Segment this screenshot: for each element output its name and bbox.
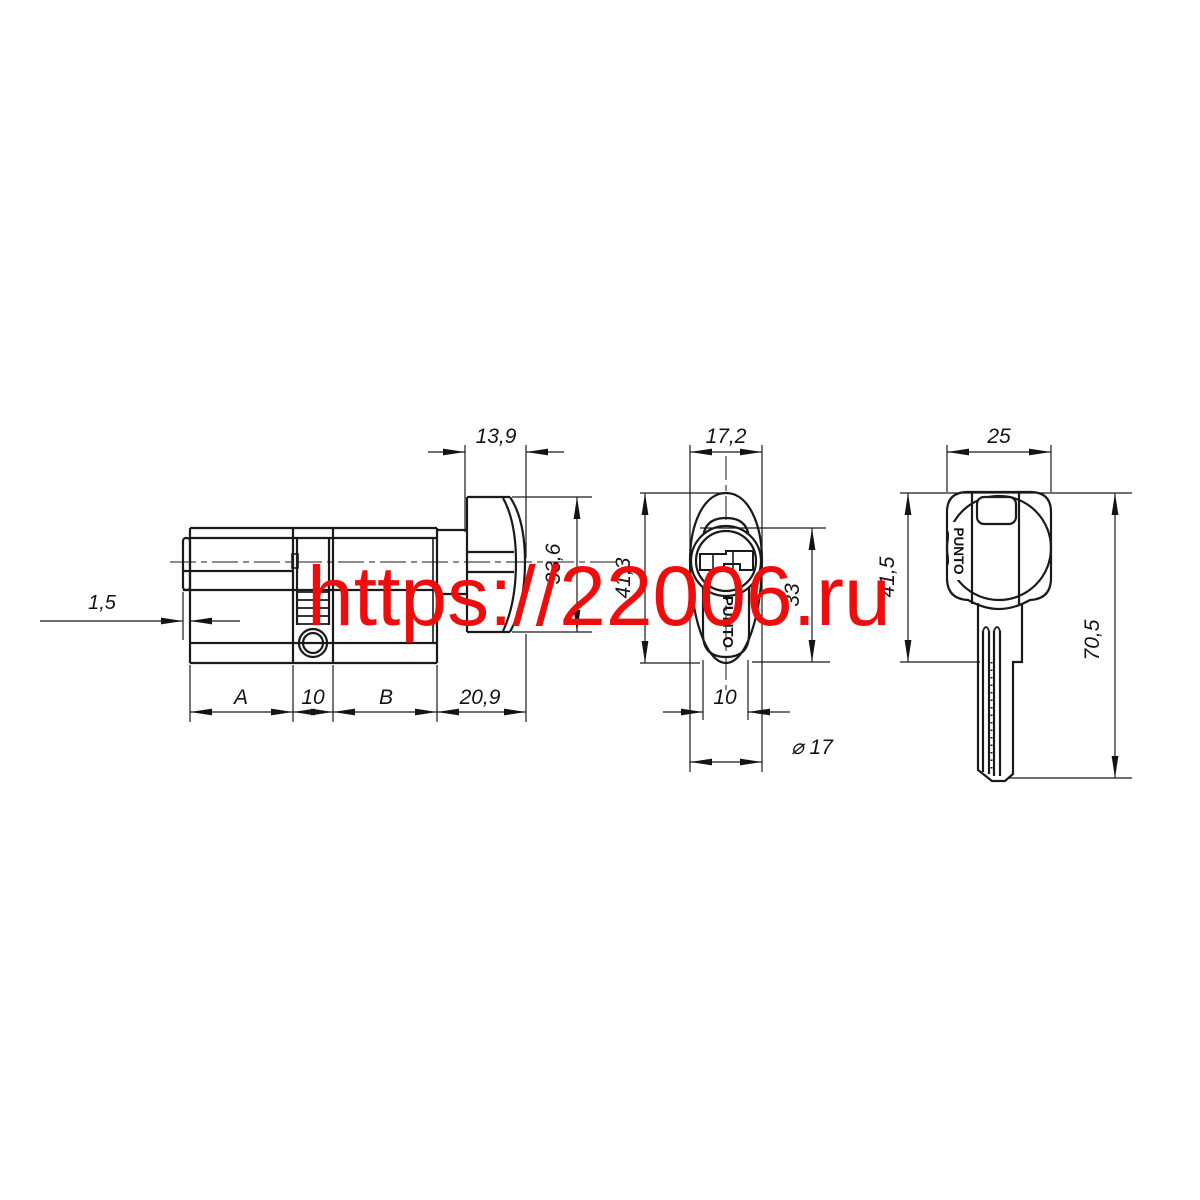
technical-drawing-page: 1,5 A 10 B 20,9 13,9 33,6 [0,0,1200,1200]
dim-key-total-length: 70,5 [1081,619,1104,660]
dim-knob-width: 13,9 [476,425,517,448]
dim-seg-b: B [379,686,393,709]
dim-plug-diameter: ⌀ 17 [791,736,834,759]
key-view-drawing: 25 41,5 70,5 PUNTO [876,425,1132,781]
watermark-url: https://22006.ru [307,554,891,638]
dim-front-slot-width: 10 [713,686,737,709]
dim-key-head-width: 25 [986,425,1011,448]
dim-seg-knob: 20,9 [459,686,501,709]
dim-front-width: 17,2 [706,425,747,448]
dim-face-thickness: 1,5 [88,592,117,614]
brand-label-key: PUNTO [951,527,966,574]
dim-seg-mid: 10 [301,686,325,709]
dim-seg-a: A [232,686,248,709]
